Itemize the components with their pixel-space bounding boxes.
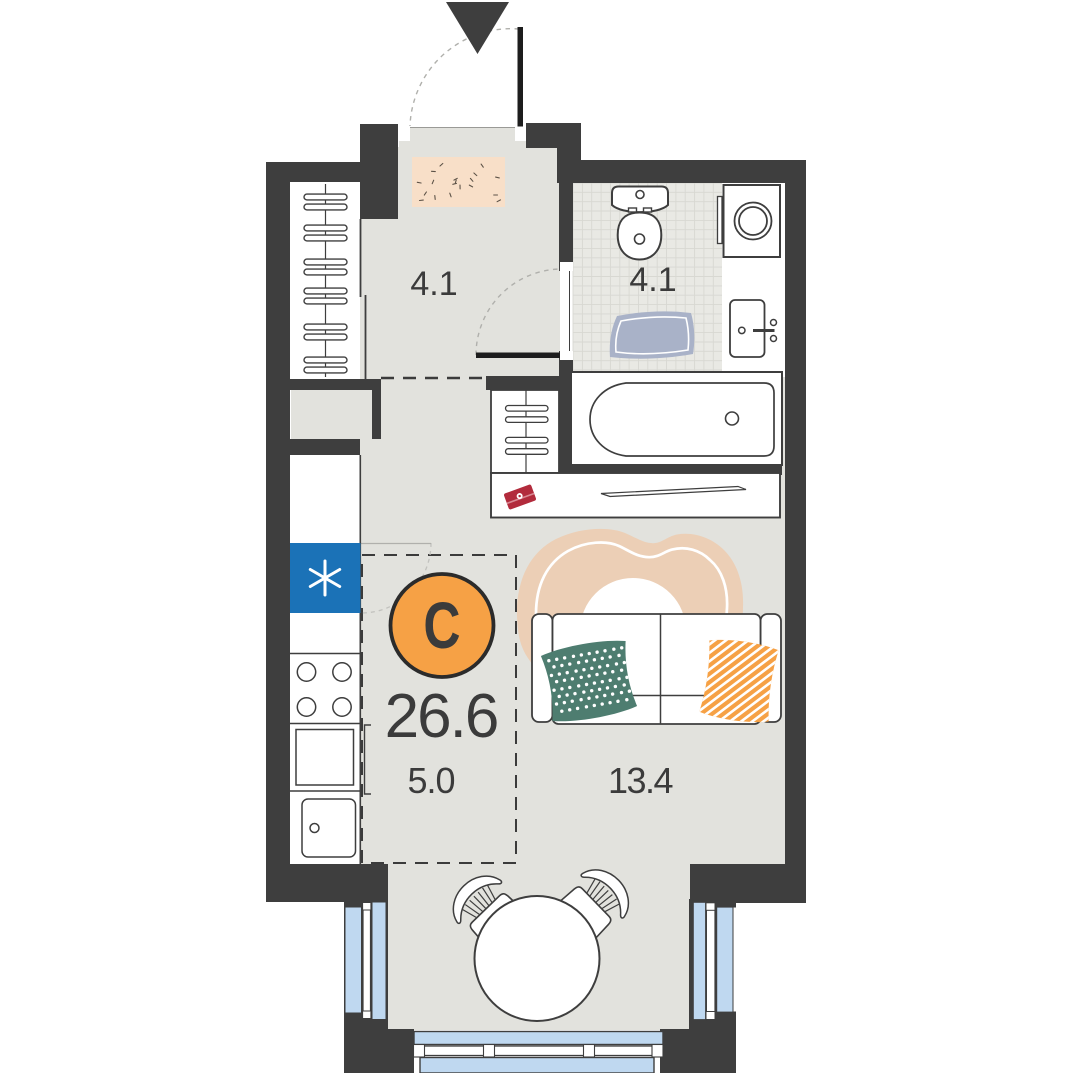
- svg-text:5.0: 5.0: [407, 760, 454, 801]
- svg-text:26.6: 26.6: [385, 682, 498, 751]
- svg-text:4.1: 4.1: [410, 265, 457, 303]
- svg-text:13.4: 13.4: [608, 760, 673, 801]
- svg-text:4.1: 4.1: [629, 261, 676, 299]
- svg-text:C: C: [423, 588, 460, 663]
